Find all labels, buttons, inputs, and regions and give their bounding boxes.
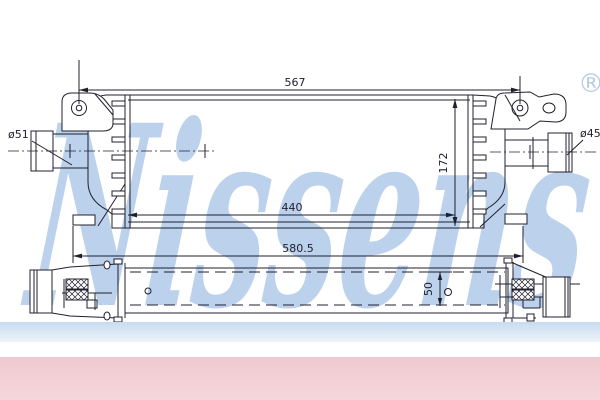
bottom-left-port	[30, 270, 52, 313]
catalog-part-image: Nissens ®	[0, 0, 600, 400]
right-bottom-bracket-foot	[505, 214, 527, 224]
pink-band	[0, 357, 600, 400]
blue-band	[0, 322, 600, 342]
left-bottom-bracket-foot	[73, 215, 95, 225]
dim-depth: 50	[422, 282, 435, 296]
dim-core-width: 440	[282, 201, 303, 214]
registered-trademark-icon: ®	[578, 69, 600, 99]
dim-core-height: 172	[437, 153, 450, 174]
footer-bands	[0, 322, 600, 400]
dim-right-port-diameter: ø45	[580, 127, 600, 140]
technical-drawing: Nissens ®	[0, 0, 600, 400]
dim-left-port-diameter: ø51	[8, 128, 29, 141]
bottom-right-port	[543, 277, 570, 317]
dim-overall-width: 580.5	[282, 242, 314, 255]
dim-mounting-width: 567	[285, 76, 306, 89]
